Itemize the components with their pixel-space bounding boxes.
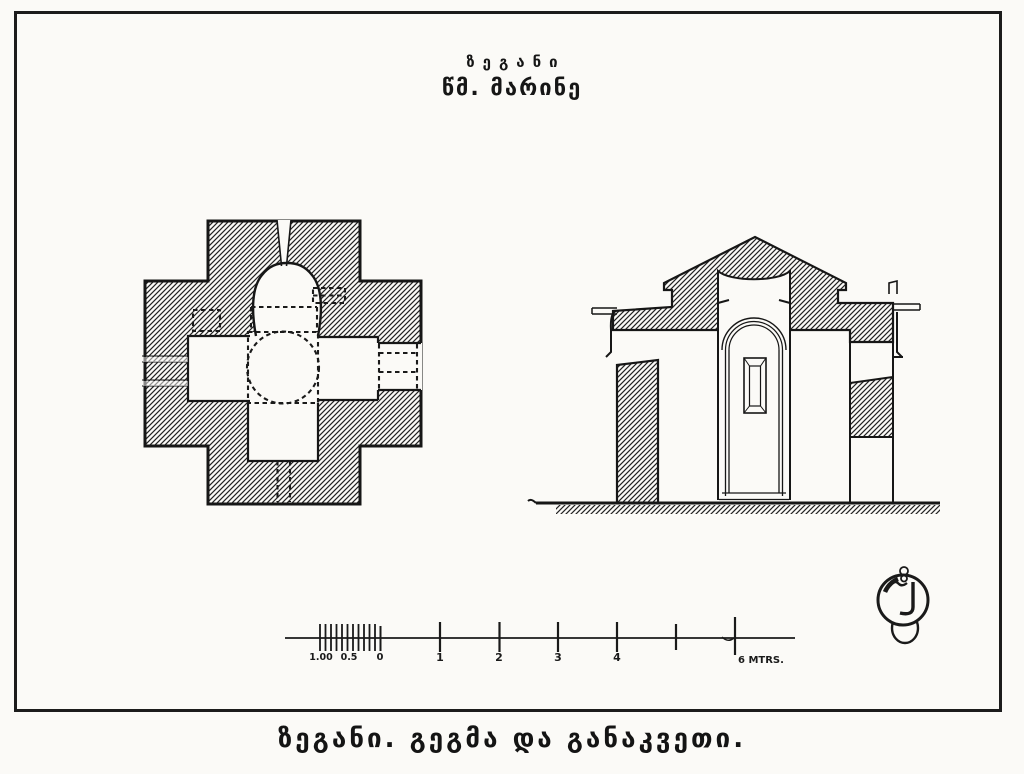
- compass-circle: [878, 575, 928, 625]
- sheet-subtitle: წმ. მარინე: [0, 77, 1024, 101]
- plan-east-arm: [318, 337, 378, 400]
- section-left-pier: [617, 360, 658, 503]
- sheet-title: ზეგანი: [8, 54, 1024, 71]
- section-altar-window: [744, 358, 766, 413]
- plan-crossing: [248, 332, 318, 403]
- scale-label-4: 4: [613, 651, 621, 664]
- sheet-caption: ზეგანი. გეგმა და განაკვეთი.: [0, 724, 1024, 754]
- section-right-bracket: [893, 312, 903, 357]
- section-right-eave: [893, 304, 920, 310]
- scale-bar: 1.00 0.5 0 1 2 3 4 6 MTRS.: [270, 598, 810, 670]
- scale-label-100: 1.00: [309, 652, 333, 663]
- section-ground-hatch: [556, 505, 940, 514]
- section-right-wall: [850, 342, 893, 503]
- section-ground-hook: [528, 500, 536, 503]
- scale-label-2: 2: [495, 651, 503, 664]
- plan-south-arm: [248, 403, 318, 461]
- scale-label-05: 0.5: [341, 652, 358, 663]
- scale-label-1: 1: [436, 651, 444, 664]
- north-compass-icon: [863, 553, 943, 653]
- scale-label-end: 6 MTRS.: [738, 655, 784, 666]
- section-drawing: [520, 222, 950, 522]
- plan-west-arm: [188, 336, 250, 401]
- plan-west-window-gap2: [143, 381, 188, 386]
- scale-label-3: 3: [554, 651, 562, 664]
- section-roof-finial: [889, 281, 897, 294]
- title-block: ზეგანი წმ. მარინე: [0, 54, 1024, 101]
- plan-east-door-opening: [378, 343, 422, 390]
- plan-drawing: [130, 205, 430, 515]
- scale-bar-lines: [285, 617, 795, 655]
- scale-label-0: 0: [377, 652, 384, 663]
- plan-west-window-gap: [143, 357, 188, 362]
- scale-bar-labels: 1.00 0.5 0 1 2 3 4 6 MTRS.: [309, 651, 784, 666]
